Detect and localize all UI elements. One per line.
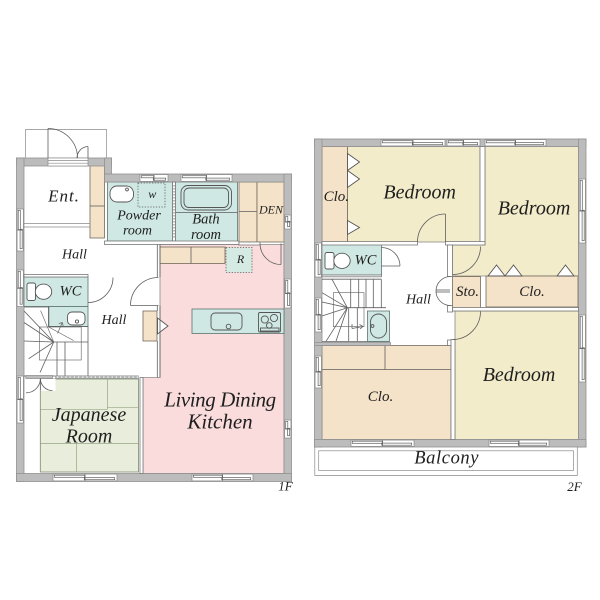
svg-text:1F: 1F: [278, 479, 294, 494]
svg-text:2F: 2F: [567, 479, 583, 494]
svg-text:Bath: Bath: [192, 212, 219, 228]
svg-text:w: w: [148, 187, 156, 201]
svg-text:Powder: Powder: [116, 209, 161, 224]
svg-text:Clo.: Clo.: [368, 389, 393, 405]
svg-text:room: room: [191, 227, 221, 243]
svg-text:Bedroom: Bedroom: [498, 198, 571, 220]
svg-text:Room: Room: [65, 426, 113, 448]
svg-text:Balcony: Balcony: [414, 449, 479, 469]
svg-text:DEN: DEN: [258, 203, 284, 217]
svg-text:Kitchen: Kitchen: [186, 409, 252, 433]
svg-text:R: R: [236, 252, 245, 266]
svg-text:Sto.: Sto.: [456, 284, 479, 300]
svg-text:Hall: Hall: [405, 293, 431, 308]
svg-text:Bedroom: Bedroom: [483, 364, 556, 386]
svg-text:Japanese: Japanese: [52, 404, 127, 426]
svg-text:room: room: [123, 224, 152, 239]
svg-text:Ent.: Ent.: [47, 187, 80, 206]
svg-text:Hall: Hall: [61, 248, 87, 263]
svg-text:Living Dining: Living Dining: [163, 388, 275, 412]
svg-text:Clo.: Clo.: [324, 189, 349, 205]
svg-text:WC: WC: [355, 253, 377, 269]
svg-text:Hall: Hall: [101, 313, 127, 328]
svg-text:Clo.: Clo.: [519, 284, 544, 300]
svg-text:Bedroom: Bedroom: [383, 182, 456, 204]
svg-text:WC: WC: [60, 284, 82, 300]
